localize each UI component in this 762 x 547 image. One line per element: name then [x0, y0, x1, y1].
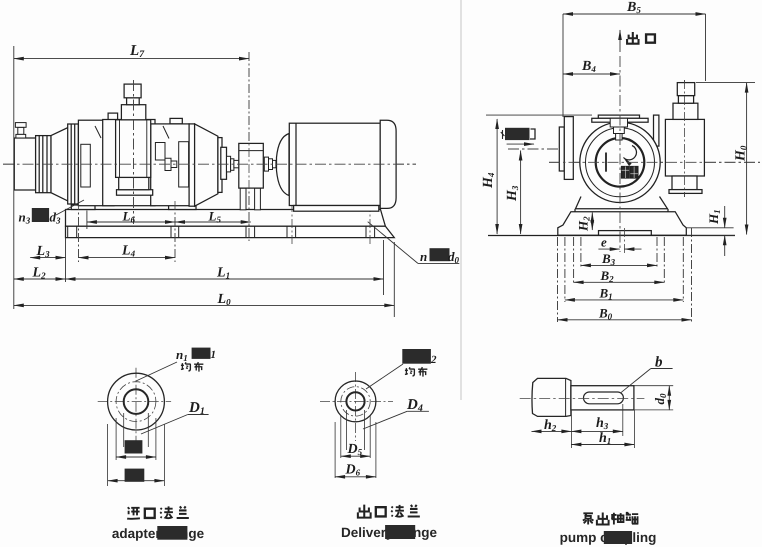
svg-text:H1: H1: [706, 209, 722, 225]
svg-text:B3: B3: [601, 251, 616, 267]
svg-text:L3: L3: [36, 244, 51, 259]
svg-text:b: b: [655, 355, 663, 371]
svg-text:B1: B1: [599, 286, 613, 302]
svg-text:1: 1: [211, 349, 217, 361]
svg-text:L2: L2: [32, 266, 47, 281]
svg-text:B4: B4: [581, 59, 596, 74]
svg-text:L1: L1: [216, 266, 230, 281]
svg-text:B2: B2: [600, 268, 615, 284]
svg-text:n1: n1: [176, 347, 188, 363]
svg-text:H3: H3: [505, 185, 520, 202]
svg-text:d0: d0: [652, 393, 668, 405]
svg-text:d0: d0: [448, 249, 460, 265]
svg-text:D5: D5: [347, 442, 363, 457]
svg-text:n3: n3: [19, 210, 31, 226]
svg-text:L0: L0: [217, 292, 232, 307]
svg-text:e: e: [601, 235, 607, 250]
svg-text:2: 2: [430, 354, 437, 366]
svg-text:H4: H4: [481, 172, 496, 189]
svg-text:L4: L4: [121, 244, 136, 259]
svg-text:B0: B0: [598, 306, 613, 322]
svg-text:L7: L7: [129, 43, 145, 60]
svg-text:d3: d3: [50, 210, 62, 226]
svg-text:h2: h2: [544, 418, 557, 433]
svg-text:h1: h1: [599, 431, 611, 446]
svg-text:D6: D6: [345, 463, 361, 478]
svg-text:h3: h3: [596, 416, 609, 431]
svg-text:B5: B5: [626, 0, 641, 15]
svg-text:n: n: [420, 249, 427, 264]
svg-text:H0: H0: [734, 145, 749, 162]
